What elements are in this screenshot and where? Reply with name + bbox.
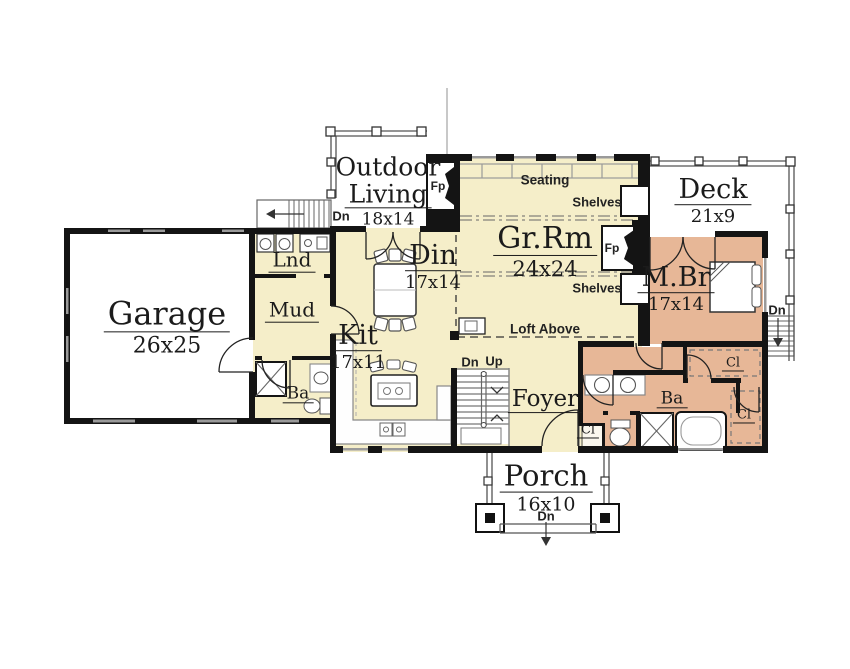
room-label-closet-lower: Cl	[733, 408, 755, 423]
room-label-outdoor-living: Outdoor Living 18x14	[334, 153, 443, 228]
room-label-foyer: Foyer	[508, 387, 582, 413]
main-staircase	[457, 368, 509, 446]
bed	[710, 262, 761, 312]
room-label-hall-bath: Ba	[283, 384, 314, 403]
room-label-closet-upper: Cl	[722, 356, 744, 371]
shelves-lower-label: Shelves	[572, 281, 621, 296]
down-deck-label: Dn	[768, 303, 785, 318]
up-main-label: Up	[485, 354, 502, 369]
room-label-kitchen: Kit 17x11	[330, 321, 386, 373]
down-porch-label: Dn	[537, 509, 554, 524]
room-label-deck: Deck 21x9	[674, 175, 751, 227]
room-label-master-bedroom: M.Br 17x14	[638, 263, 715, 315]
room-label-great-room: Gr.Rm 24x24	[493, 223, 597, 281]
down-outdoor-label: Dn	[332, 209, 349, 224]
room-label-closet-foyer: Cl	[577, 423, 599, 438]
fireplace-great-label: Fp	[605, 241, 620, 255]
outdoor-stairs	[257, 200, 331, 228]
shelves-upper-label: Shelves	[572, 195, 621, 210]
room-label-laundry: Lnd	[269, 250, 316, 273]
room-label-garage: Garage 26x25	[104, 296, 230, 357]
seating-label: Seating	[521, 173, 570, 188]
fireplace-outdoor-label: Fp	[431, 179, 446, 193]
loft-above-label: Loft Above	[510, 322, 580, 337]
room-label-master-bath: Ba	[657, 389, 688, 408]
floor-plan: Garage 26x25 Lnd Mud Ba Outdoor Living 1…	[0, 0, 850, 669]
room-label-porch: Porch 16x10	[500, 461, 593, 516]
room-label-mud: Mud	[265, 300, 319, 323]
down-main-label: Dn	[461, 355, 478, 370]
room-label-dining: Din 17x14	[405, 241, 461, 293]
